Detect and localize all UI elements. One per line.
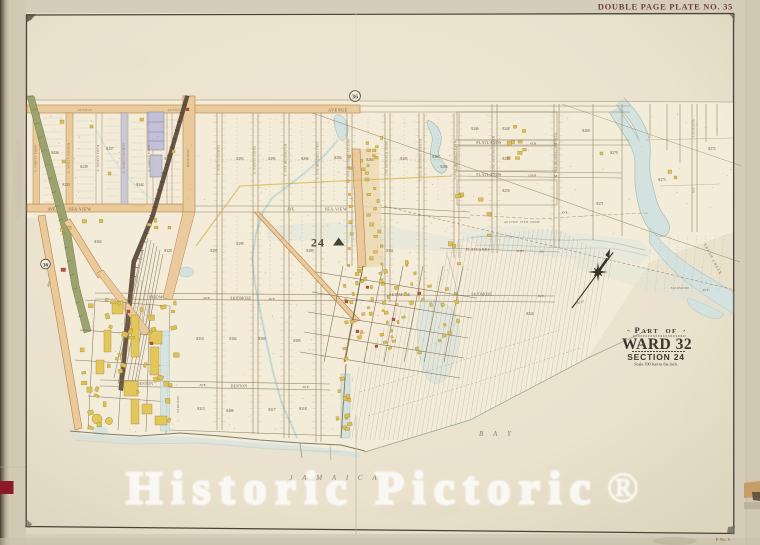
svg-text:8264: 8264 xyxy=(366,158,373,162)
svg-text:8313: 8313 xyxy=(197,407,204,411)
svg-text:AVENUE: AVENUE xyxy=(328,108,348,113)
svg-text:P. No. 5: P. No. 5 xyxy=(716,537,731,542)
svg-text:8246: 8246 xyxy=(471,127,478,131)
svg-text:8293: 8293 xyxy=(236,157,243,161)
svg-text:8297: 8297 xyxy=(210,249,217,253)
svg-text:DENTON: DENTON xyxy=(231,385,248,389)
svg-text:8304: 8304 xyxy=(94,240,101,244)
svg-text:4TH: 4TH xyxy=(530,142,537,146)
svg-text:8299: 8299 xyxy=(306,249,313,253)
svg-text:8241: 8241 xyxy=(164,157,171,161)
svg-text:FLATLANDS: FLATLANDS xyxy=(476,173,501,177)
svg-text:SKIDMORE: SKIDMORE xyxy=(389,293,411,297)
svg-text:8324: 8324 xyxy=(526,312,533,316)
svg-text:8317: 8317 xyxy=(268,408,275,412)
svg-text:DENTON: DENTON xyxy=(137,382,154,386)
svg-text:8310: 8310 xyxy=(196,337,203,341)
svg-text:8305: 8305 xyxy=(293,339,300,343)
svg-text:AVE.: AVE. xyxy=(702,288,710,292)
svg-text:8275: 8275 xyxy=(708,147,715,151)
svg-text:AVE.: AVE. xyxy=(268,297,276,301)
svg-text:8302: 8302 xyxy=(229,337,236,341)
svg-text:8259: 8259 xyxy=(502,157,509,161)
svg-text:8295: 8295 xyxy=(268,157,275,161)
svg-text:AVENUE: AVENUE xyxy=(77,108,92,112)
svg-text:10TH: 10TH xyxy=(528,174,536,178)
svg-text:AVE.: AVE. xyxy=(199,383,207,387)
svg-text:8236: 8236 xyxy=(51,151,58,155)
svg-text:8305: 8305 xyxy=(400,157,407,161)
svg-text:8303: 8303 xyxy=(258,337,265,341)
svg-text:AUTUMN VIEW HOME: AUTUMN VIEW HOME xyxy=(504,221,540,224)
svg-text:8269: 8269 xyxy=(582,129,589,133)
svg-text:E. ONE HUNDRED FOURTH: E. ONE HUNDRED FOURTH xyxy=(419,139,423,181)
svg-text:8250: 8250 xyxy=(502,189,509,193)
svg-text:DOUBLE PAGE PLATE NO. 35: DOUBLE PAGE PLATE NO. 35 xyxy=(598,2,733,12)
svg-text:8279: 8279 xyxy=(610,151,617,155)
svg-text:11TH: 11TH xyxy=(516,249,524,253)
svg-text:8273: 8273 xyxy=(658,178,665,182)
svg-text:SECTION 24: SECTION 24 xyxy=(627,352,685,362)
svg-text:AVE.: AVE. xyxy=(302,385,310,389)
svg-text:8294: 8294 xyxy=(334,156,341,160)
svg-text:8248: 8248 xyxy=(502,127,509,131)
svg-text:PARKWAY: PARKWAY xyxy=(176,395,180,413)
svg-text:®: ® xyxy=(607,466,639,512)
svg-text:E. NINETY FIFTH: E. NINETY FIFTH xyxy=(96,144,100,171)
svg-text:Historic Pictoric: Historic Pictoric xyxy=(126,463,599,515)
svg-text:E. ONE HUNDREDTH: E. ONE HUNDREDTH xyxy=(284,143,288,176)
svg-text:LOUISIANA: LOUISIANA xyxy=(692,118,696,137)
svg-text:ST.: ST. xyxy=(554,142,559,146)
svg-text:8298: 8298 xyxy=(236,242,243,246)
svg-text:WARD 32: WARD 32 xyxy=(622,336,692,353)
svg-text:E. NINETY EIGHTH: E. NINETY EIGHTH xyxy=(217,145,221,175)
svg-text:SEA VIEW: SEA VIEW xyxy=(325,208,348,212)
svg-text:8296: 8296 xyxy=(301,157,308,161)
svg-text:ROCKAWAY: ROCKAWAY xyxy=(186,148,190,167)
svg-text:E. ONE HUNDRED SECOND: E. ONE HUNDRED SECOND xyxy=(347,138,351,180)
svg-text:24: 24 xyxy=(311,236,325,250)
svg-text:8242: 8242 xyxy=(136,183,143,187)
svg-text:FLATLANDS: FLATLANDS xyxy=(476,141,501,145)
svg-text:E. NINETY EIGHTH: E. NINETY EIGHTH xyxy=(122,143,126,173)
svg-text:8486: 8486 xyxy=(226,409,233,413)
svg-text:36: 36 xyxy=(352,95,358,101)
svg-text:8301: 8301 xyxy=(386,249,393,253)
svg-text:8318: 8318 xyxy=(299,407,306,411)
svg-text:AVE.: AVE. xyxy=(287,208,295,212)
svg-text:SKIDMORE: SKIDMORE xyxy=(230,297,252,301)
svg-text:B A Y: B A Y xyxy=(479,430,515,438)
svg-text:AVE.: AVE. xyxy=(561,211,569,215)
svg-text:AVENUE: AVENUE xyxy=(167,108,182,112)
svg-text:E. NINETY FOURTH: E. NINETY FOURTH xyxy=(67,142,71,173)
svg-text:AVE.: AVE. xyxy=(692,186,696,193)
svg-text:E. NINETY NINTH: E. NINETY NINTH xyxy=(253,146,257,174)
svg-text:8266: 8266 xyxy=(440,165,447,169)
svg-text:AVE.: AVE. xyxy=(203,296,211,300)
svg-text:8237: 8237 xyxy=(106,147,113,151)
svg-text:8320: 8320 xyxy=(164,249,171,253)
svg-text:SEA VIEW: SEA VIEW xyxy=(69,207,92,212)
svg-text:E. NINETY SIXTH: E. NINETY SIXTH xyxy=(147,144,151,172)
svg-text:8239: 8239 xyxy=(80,165,87,169)
svg-text:SKIDMORE: SKIDMORE xyxy=(471,293,493,297)
svg-text:8267: 8267 xyxy=(432,155,439,159)
svg-text:AVE.: AVE. xyxy=(48,207,57,212)
svg-text:ST.: ST. xyxy=(554,174,559,178)
svg-text:E. ONE HUNDRED THIRD: E. ONE HUNDRED THIRD xyxy=(385,140,389,179)
svg-text:Scale 190 feet to the inch.: Scale 190 feet to the inch. xyxy=(634,362,678,367)
svg-text:36: 36 xyxy=(43,263,49,269)
svg-text:8233: 8233 xyxy=(62,183,69,187)
svg-text:8271: 8271 xyxy=(596,202,603,206)
svg-text:E. NINETY THIRD: E. NINETY THIRD xyxy=(34,144,38,172)
